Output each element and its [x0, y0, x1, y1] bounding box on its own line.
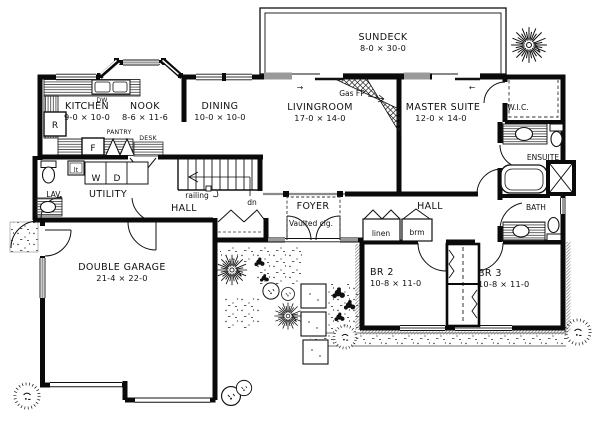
livingroom-dims: 17-0 × 14-0: [294, 113, 345, 123]
coat-closet: [218, 210, 266, 232]
dining-label: DINING: [202, 101, 239, 112]
shrub-starburst-walkway: [274, 302, 301, 329]
wic-door-swing: [484, 82, 505, 103]
br2-door-swing: [418, 243, 446, 271]
br3-dims: 10-8 × 11-0: [478, 279, 529, 289]
bush-walkway-1: [263, 283, 279, 299]
garage-door-right: [135, 397, 210, 405]
br2-label: BR 2: [370, 267, 394, 278]
lav-fixtures: [36, 161, 62, 216]
ensuite-label: ENSUITE: [527, 153, 559, 162]
kitchen-dims: 9-0 × 10-0: [64, 112, 110, 122]
bath-label: BATH: [526, 203, 546, 212]
garage-side-door-swing: [45, 230, 71, 256]
floor-plan-page: SUNDECK 8-0 × 30-0 KITCHEN 9-0 × 10-0 NO…: [0, 0, 600, 423]
garage-dims: 21-4 × 22-0: [96, 273, 147, 283]
slider-arrow-right: →: [297, 83, 303, 92]
gas-fp-label: Gas FP: [339, 89, 365, 98]
foyer-half-wall: [263, 191, 345, 197]
utility-fixtures: [68, 161, 148, 184]
desk-label: DESK: [139, 135, 157, 142]
foyer-label: FOYER: [297, 201, 330, 212]
stair-treads: [188, 159, 252, 190]
pantry-label: PANTRY: [107, 129, 132, 136]
master-patio-door: [404, 72, 480, 82]
washer-label: W: [92, 174, 101, 184]
desk-surface: [134, 142, 163, 156]
garage-man-door-swing: [128, 222, 156, 250]
lav-label: LAV.: [46, 190, 62, 199]
bath-window: [560, 198, 567, 214]
brm-label: brm: [409, 228, 424, 237]
livingroom-label: LIVINGROOM: [287, 102, 353, 113]
dining-window: [196, 73, 252, 81]
ensuite-sink: [516, 128, 533, 141]
utility-label: UTILITY: [89, 189, 127, 200]
hall-left-label: HALL: [171, 203, 197, 214]
laundry-tub-label: lt: [74, 167, 79, 174]
bush-walkway-2: [282, 288, 295, 301]
bush-bottom-left: [15, 384, 39, 408]
bath-toilet-bowl: [548, 218, 559, 233]
shrub-starburst-bed: [217, 255, 247, 285]
garden-bed-stipple-3: [222, 298, 260, 328]
garage-side-door-gap: [39, 226, 46, 256]
bath-fixtures: [503, 218, 561, 242]
bath-sink: [513, 225, 529, 237]
bath-toilet-tank: [547, 234, 561, 241]
floor-plan-drawing: SUNDECK 8-0 × 30-0 KITCHEN 9-0 × 10-0 NO…: [0, 0, 600, 423]
nook-dims: 8-6 × 11-6: [122, 112, 168, 122]
br3-label: BR 3: [478, 268, 502, 279]
br2-dims: 10-8 × 11-0: [370, 278, 421, 288]
hall-right-label: HALL: [417, 201, 443, 212]
linen-label: linen: [372, 229, 391, 238]
lav-sink: [41, 202, 56, 213]
nook-label: NOOK: [130, 101, 160, 112]
sundeck-label: SUNDECK: [358, 32, 407, 43]
tree-top-right: [511, 27, 547, 63]
walkway-pavers: [301, 284, 328, 364]
side-porch-gravel: [10, 222, 38, 252]
bush-garage-right-2: [236, 380, 251, 395]
dryer-label: D: [114, 174, 121, 184]
wall-trim-br2-left: [355, 244, 360, 330]
dining-dims: 10-0 × 10-0: [194, 112, 245, 122]
fridge-label: R: [52, 121, 58, 131]
lav-toilet-bowl: [43, 167, 55, 183]
ensuite-toilet-bowl: [551, 132, 562, 147]
slider-arrow-left: ←: [469, 83, 475, 92]
bush-walkway-right: [334, 326, 356, 348]
dn-label: dn: [247, 198, 257, 207]
wic-label: W.I.C.: [507, 103, 528, 112]
ensuite-toilet-tank: [550, 124, 563, 131]
dw-label: DW: [96, 97, 107, 104]
wall-trim-right: [566, 242, 571, 332]
master-suite-label: MASTER SUITE: [406, 102, 481, 113]
interior-walls: [40, 75, 565, 242]
railing-leader: [213, 191, 218, 197]
garage-label: DOUBLE GARAGE: [78, 262, 166, 273]
foyer-note: Vaulted clg.: [289, 219, 333, 228]
garage-door-left: [50, 381, 122, 389]
railing-label: railing: [185, 191, 209, 200]
master-suite-dims: 12-0 × 14-0: [415, 113, 466, 123]
br2-window: [400, 325, 445, 332]
freezer-label: F: [90, 144, 95, 154]
livingroom-patio-door: [264, 72, 343, 82]
sundeck-dims: 8-0 × 30-0: [360, 43, 406, 53]
garage-side-window: [39, 258, 46, 298]
bedroom-closets: [447, 244, 479, 326]
